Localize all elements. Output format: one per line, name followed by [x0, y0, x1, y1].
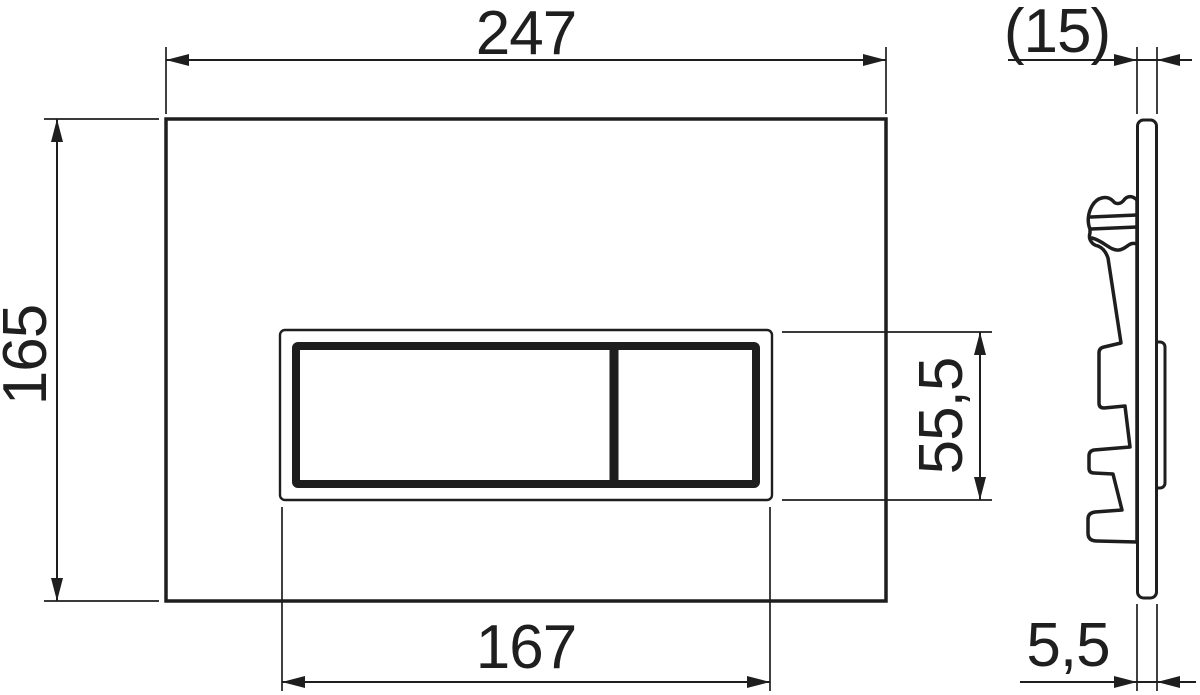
arrowhead-left — [1157, 54, 1180, 66]
clip-ridge-line — [1091, 227, 1137, 229]
clip-ridge-line — [1091, 215, 1137, 217]
arrowhead-right — [747, 676, 770, 688]
arrowhead-left — [166, 54, 189, 66]
arrowhead-down — [974, 477, 986, 500]
side-view — [1088, 120, 1165, 598]
front-view — [166, 119, 886, 601]
dim-label-plate-height: 165 — [0, 305, 60, 405]
arrowhead-up — [974, 332, 986, 355]
dim-label-total-depth: (15) — [1004, 0, 1110, 66]
arrowhead-left — [282, 676, 305, 688]
button-recess-outline — [280, 330, 772, 500]
dimension-plate-width: 247 — [166, 0, 886, 114]
arrowhead-right — [863, 54, 886, 66]
arrowhead-up — [51, 119, 63, 142]
dimension-plate-thickness: 5,5 — [1020, 604, 1196, 691]
arrowhead-right — [1114, 676, 1137, 688]
technical-drawing-page: 247 165 167 55,5 (15) — [0, 0, 1200, 695]
dim-label-button-height: 55,5 — [907, 358, 976, 475]
dimension-plate-height: 165 — [0, 119, 159, 601]
flush-plate-technical-drawing: 247 165 167 55,5 (15) — [0, 0, 1200, 695]
arrowhead-left — [1157, 676, 1180, 688]
plate-side-profile — [1138, 120, 1157, 598]
dim-label-button-width: 167 — [476, 613, 576, 682]
arrowhead-right — [1114, 54, 1137, 66]
dim-label-plate-width: 247 — [476, 0, 576, 68]
arrowhead-down — [51, 578, 63, 601]
dim-label-plate-thickness: 5,5 — [1026, 611, 1109, 680]
dimension-total-depth: (15) — [1004, 0, 1192, 114]
